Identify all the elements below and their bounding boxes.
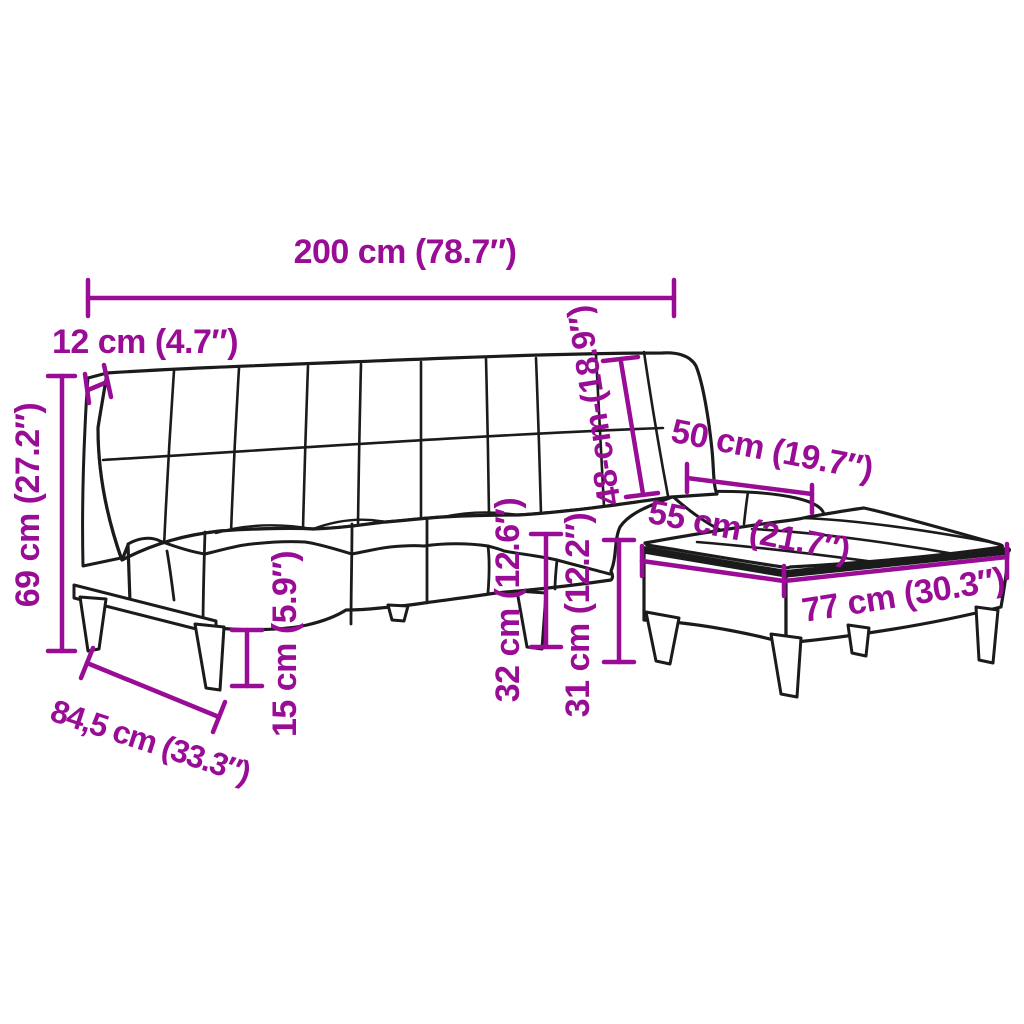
svg-text:200 cm (78.7″): 200 cm (78.7″) bbox=[294, 233, 517, 271]
svg-text:15 cm (5.9″): 15 cm (5.9″) bbox=[266, 551, 304, 737]
svg-text:69 cm (27.2″): 69 cm (27.2″) bbox=[9, 403, 47, 607]
svg-text:32 cm (12.6″): 32 cm (12.6″) bbox=[489, 498, 527, 702]
svg-text:12 cm (4.7″): 12 cm (4.7″) bbox=[52, 323, 238, 361]
svg-text:31 cm (12.2″): 31 cm (12.2″) bbox=[559, 513, 597, 717]
